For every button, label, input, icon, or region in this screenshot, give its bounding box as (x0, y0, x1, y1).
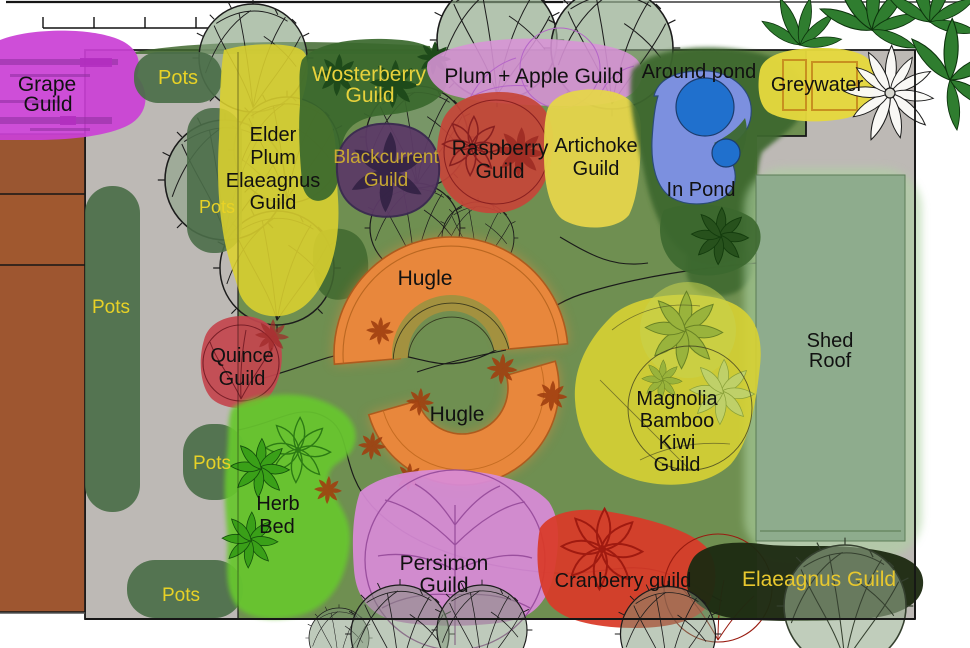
svg-text:Elder: Elder (250, 124, 297, 146)
svg-text:Quince: Quince (210, 345, 273, 367)
svg-text:Guild: Guild (250, 192, 297, 214)
svg-text:Hugle: Hugle (398, 267, 453, 290)
svg-text:Guild: Guild (345, 84, 394, 107)
svg-text:Pots: Pots (92, 297, 130, 318)
svg-text:In Pond: In Pond (667, 179, 736, 201)
svg-text:Guild: Guild (475, 160, 524, 183)
svg-text:Bed: Bed (259, 516, 295, 538)
svg-text:Cranberry guild: Cranberry guild (555, 570, 692, 592)
svg-text:Guild: Guild (23, 93, 72, 116)
svg-text:Artichoke: Artichoke (554, 135, 637, 157)
svg-text:Pots: Pots (158, 67, 198, 89)
svg-text:Guild: Guild (654, 454, 701, 476)
svg-text:Around pond: Around pond (642, 61, 757, 83)
svg-text:Raspberry: Raspberry (452, 137, 549, 160)
svg-text:Shed: Shed (807, 330, 854, 352)
svg-text:Persimon: Persimon (400, 552, 489, 575)
svg-text:Guild: Guild (219, 368, 266, 390)
svg-text:Kiwi: Kiwi (659, 432, 696, 454)
svg-text:Greywater: Greywater (771, 74, 864, 96)
svg-text:Guild: Guild (419, 574, 468, 597)
svg-text:Wosterberry: Wosterberry (312, 63, 426, 86)
svg-text:Magnolia: Magnolia (636, 388, 718, 410)
svg-text:Pots: Pots (162, 585, 200, 606)
svg-text:Roof: Roof (809, 350, 852, 372)
svg-text:Guild: Guild (573, 158, 620, 180)
svg-text:Plum + Apple Guild: Plum + Apple Guild (444, 65, 623, 88)
svg-text:Blackcurrent: Blackcurrent (333, 147, 439, 168)
svg-text:Hugle: Hugle (430, 403, 485, 426)
svg-text:Herb: Herb (256, 493, 299, 515)
svg-text:Elaeagnus Guild: Elaeagnus Guild (742, 568, 896, 591)
svg-text:Elaeagnus: Elaeagnus (226, 170, 321, 192)
svg-text:Plum: Plum (250, 147, 296, 169)
svg-text:Guild: Guild (364, 170, 408, 191)
svg-text:Pots: Pots (199, 197, 235, 217)
svg-text:Pots: Pots (193, 453, 231, 474)
svg-text:Bamboo: Bamboo (640, 410, 715, 432)
